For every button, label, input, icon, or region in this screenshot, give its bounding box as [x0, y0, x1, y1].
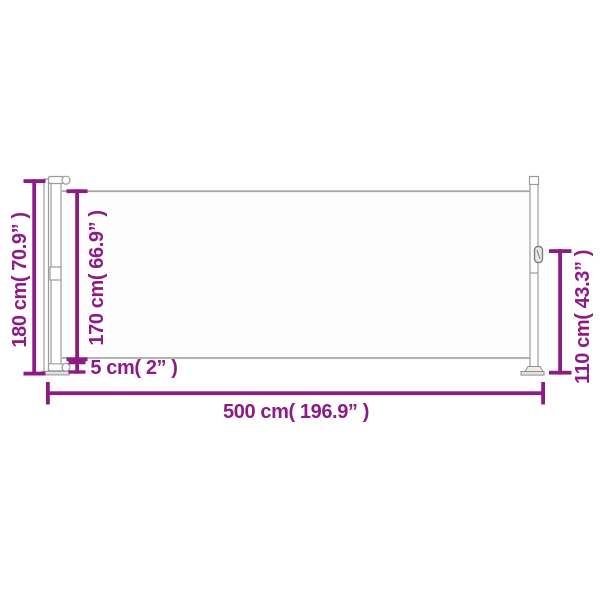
- dim-bottom-clearance: [69, 361, 86, 374]
- label-fabric-height: 170 cm( 66.9” ): [87, 210, 107, 345]
- dim-end-post-height: [549, 249, 572, 374]
- awning-dimension-diagram: 180 cm( 70.9” ) 170 cm( 66.9” ) 5 cm( 2”…: [0, 0, 600, 600]
- label-total-height: 180 cm( 70.9” ): [10, 212, 30, 347]
- fabric-panel: [62, 191, 530, 358]
- label-bottom-clearance: 5 cm( 2” ): [90, 358, 177, 378]
- label-end-post-height: 110 cm( 43.3” ): [573, 250, 593, 384]
- label-total-length: 500 cm( 196.9” ): [223, 402, 369, 422]
- handle-icon: [535, 247, 543, 263]
